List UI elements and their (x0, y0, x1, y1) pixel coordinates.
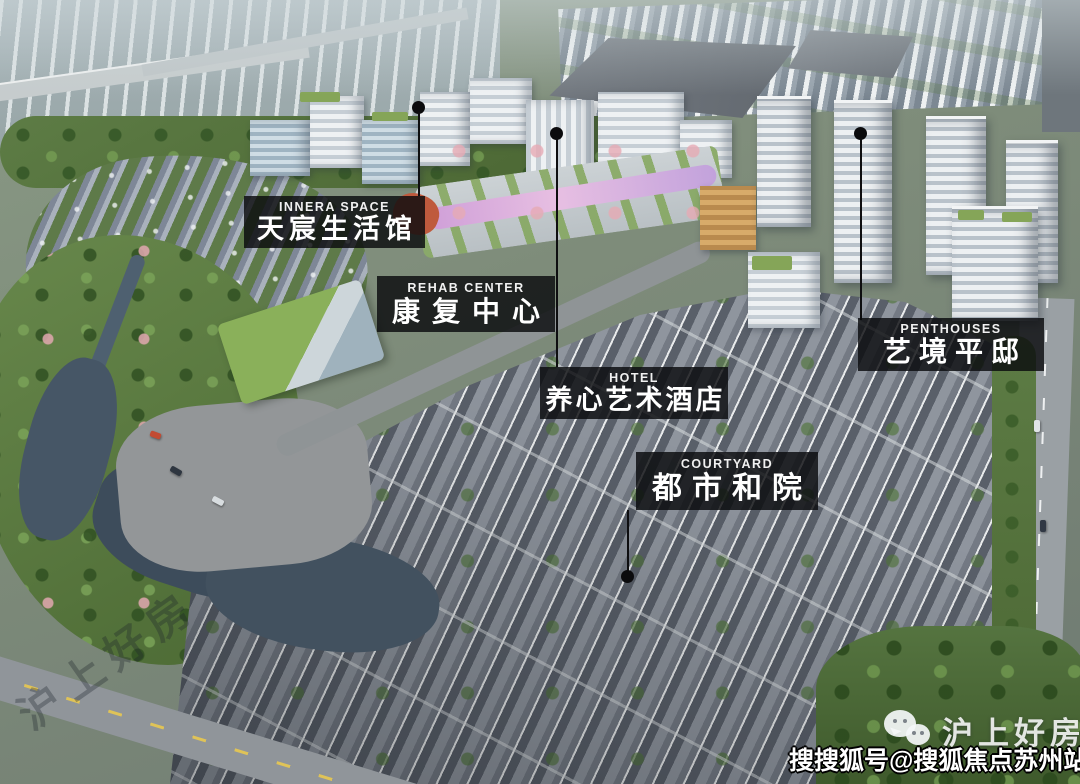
tower-1 (757, 96, 811, 227)
car (1034, 420, 1040, 432)
callout-zh-label: 养心艺术酒店 (543, 386, 726, 414)
atmospheric-haze (0, 0, 1080, 95)
innera-building-1 (250, 120, 310, 176)
orange-building (700, 186, 756, 250)
callout-courtyard: COURTYARD 都市和院 (636, 452, 818, 510)
callout-zh-label: 都市和院 (642, 473, 812, 505)
callout-en-label: HOTEL (609, 372, 659, 385)
callout-hotel: HOTEL 养心艺术酒店 (540, 367, 728, 419)
leader-line-courtyard (627, 510, 629, 572)
innera-building-3 (362, 120, 420, 184)
green-roof (958, 210, 984, 220)
leader-line-innera (418, 112, 420, 196)
sohu-caption: 搜搜狐号@搜狐焦点苏州站 (789, 741, 1080, 777)
callout-en-label: COURTYARD (681, 458, 773, 471)
callout-innera-space: INNERA SPACE 天宸生活馆 (244, 196, 425, 248)
green-roof (752, 256, 792, 270)
callout-rehab-center: REHAB CENTER 康复中心 (377, 276, 555, 332)
aerial-rendering: INNERA SPACE 天宸生活馆 REHAB CENTER 康复中心 HOT… (0, 0, 1080, 784)
callout-en-label: INNERA SPACE (279, 201, 390, 214)
callout-penthouses: PENTHOUSES 艺境平邸 (858, 318, 1044, 371)
callout-en-label: REHAB CENTER (407, 282, 524, 295)
callout-en-label: PENTHOUSES (900, 323, 1001, 336)
car (1040, 520, 1046, 532)
callout-zh-label: 艺境平邸 (875, 337, 1027, 366)
callout-zh-label: 康复中心 (380, 297, 552, 326)
green-roof (372, 112, 408, 121)
innera-building-2 (310, 96, 364, 168)
green-roof (1002, 212, 1032, 222)
leader-line-penthouses (860, 138, 862, 320)
leader-line-hotel (556, 138, 558, 367)
leader-dot-courtyard (621, 570, 634, 583)
tower-5 (952, 206, 1038, 321)
callout-zh-label: 天宸生活馆 (252, 215, 417, 243)
